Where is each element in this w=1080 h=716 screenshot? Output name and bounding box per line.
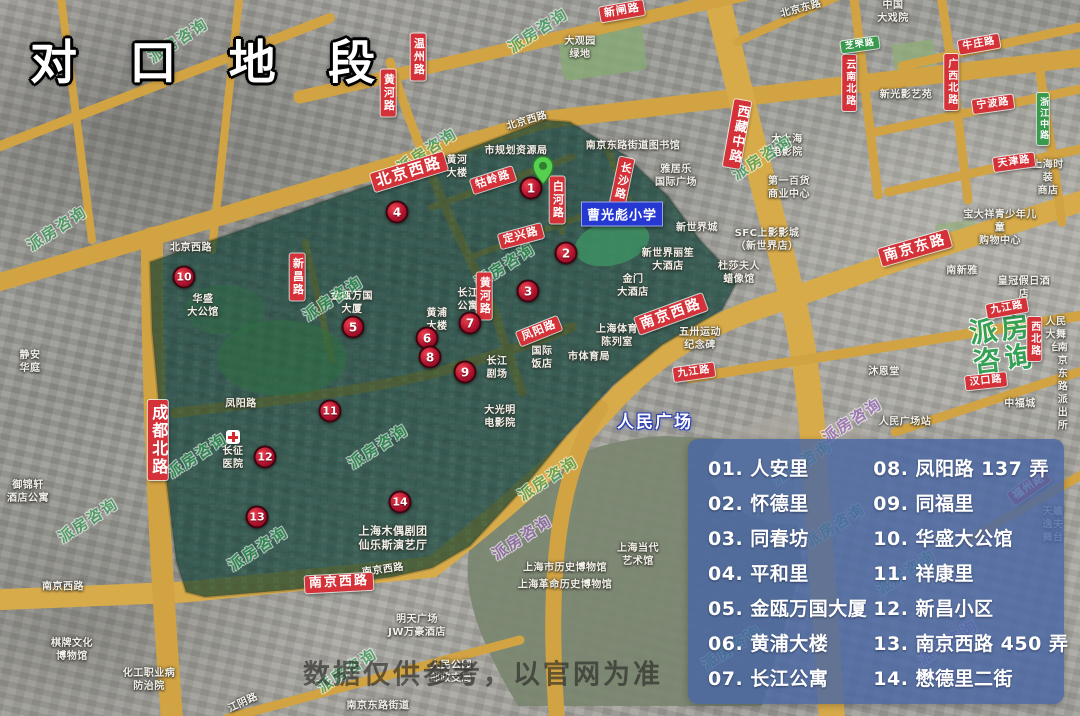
legend-item: 10. 华盛大公馆 [873,524,1068,551]
map-marker-3: 3 [517,280,540,303]
road-label: 浙江中路 [1037,93,1049,145]
legend-item: 05. 金瓯万国大厦 [708,594,867,621]
legend-item: 07. 长江公寓 [708,664,867,691]
map-marker-10: 10 [173,266,196,289]
marker-number: 3 [524,284,532,298]
marker-number: 10 [176,271,191,284]
marker-number: 11 [322,405,337,418]
place-label: 上海市历史博物馆 [523,562,607,575]
marker-number: 5 [349,320,357,334]
road-label: 温州路 [411,34,426,81]
place-label: 宝大祥青少年儿童 购物中心 [960,209,1040,248]
map-marker-1: 1 [520,177,543,200]
place-label: 上海革命历史博物馆 [518,579,613,592]
place-label: 杜莎夫人 蜡像馆 [718,260,760,286]
marker-number: 7 [466,316,474,330]
place-label: 上海木偶剧团 仙乐斯演艺厅 [359,525,428,554]
place-label: SFC上影影城 （新世界店） [735,227,800,253]
map-marker-8: 8 [419,346,442,369]
legend-panel: 01. 人安里 02. 怀德里 03. 同春坊 04. 平和里 05. 金瓯万国… [688,439,1064,704]
place-label: 南新雅 [946,265,978,278]
place-label: 第一百货 商业中心 [768,175,810,201]
place-label: 上海体育 陈列室 [596,323,638,349]
disclaimer-text: 数据仅供参考，以官网为准 [303,653,663,692]
place-label: 长江 剧场 [487,355,508,381]
place-label: 大光明 电影院 [484,404,516,430]
legend-item: 14. 懋德里二街 [873,664,1068,691]
road-label: 成都北路 [148,400,168,480]
road-label-gray: 北京西路 [170,242,212,255]
marker-number: 13 [249,511,264,524]
map-marker-13: 13 [246,506,269,529]
legend-item: 03. 同春坊 [708,524,867,551]
place-label: 大观园 绿地 [564,35,596,61]
road-label: 云南北路 [842,55,856,111]
place-label: 上海当代 艺术馆 [617,542,659,568]
legend-column-left: 01. 人安里 02. 怀德里 03. 同春坊 04. 平和里 05. 金瓯万国… [708,454,867,691]
place-label: 五卅运动 纪念碑 [679,326,721,352]
legend-item: 01. 人安里 [708,454,867,481]
marker-number: 6 [423,331,431,345]
place-label: 新世界丽笙 大酒店 [642,247,695,273]
place-label: 静安 华庭 [20,349,41,375]
place-label: 南京东路街道 [347,700,410,713]
legend-item: 12. 新昌小区 [873,594,1068,621]
map-marker-4: 4 [386,201,409,224]
legend-item: 13. 南京西路 450 弄 [873,629,1068,656]
hospital-cross-icon [226,430,240,444]
place-label: 新光影艺苑 [880,89,933,102]
school-label: 曹光彪小学 [581,202,663,227]
place-label: 长江 公寓 [458,287,479,313]
place-label: 新世界城 [676,222,718,235]
road-label: 西北路 [1027,317,1041,361]
place-label: 市体育局 [568,351,610,364]
place-label: 御锦轩 酒店公寓 [7,479,49,505]
place-label: 人民广场站 [879,416,932,429]
place-label: 化工职业病 防治院 [123,667,176,693]
place-label: 沐恩堂 [868,366,900,379]
place-label: 金门 大酒店 [617,273,649,299]
place-label: 南京东路街道图书馆 [586,140,681,153]
place-label: 上海时装 商店 [1032,159,1064,198]
road-label-gray: 凤阳路 [225,398,257,411]
map-marker-9: 9 [454,361,477,384]
legend-column-right: 08. 凤阳路 137 弄 09. 同福里 10. 华盛大公馆 11. 祥康里 … [873,454,1068,691]
legend-item: 09. 同福里 [873,489,1068,516]
road-label: 南京西路 [305,573,374,593]
place-label: 南京东路 派出所 [1055,342,1072,433]
marker-number: 4 [393,205,401,219]
marker-number: 14 [392,496,407,509]
road-label-gray: 南京西路 [42,581,84,594]
place-label: 明天广场 JW万豪酒店 [388,613,446,639]
map-marker-7: 7 [459,312,482,335]
page-title: 对 口 地 段 [30,24,393,93]
marker-number: 2 [562,246,570,260]
map-marker-12: 12 [254,446,277,469]
road-label: 广西北路 [944,54,958,110]
place-label: 中国 大戏院 [877,0,909,25]
map-marker-14: 14 [389,491,412,514]
legend-item: 04. 平和里 [708,559,867,586]
legend-item: 08. 凤阳路 137 弄 [873,454,1068,481]
map-marker-5: 5 [342,316,365,339]
marker-number: 8 [426,350,434,364]
place-label: 华盛 大公馆 [187,293,219,319]
place-label: 国际 饭店 [532,345,553,371]
legend-item: 06. 黄浦大楼 [708,629,867,656]
legend-item: 02. 怀德里 [708,489,867,516]
place-label: 棋牌文化 博物馆 [51,637,93,663]
marker-number: 1 [527,181,535,195]
map-marker-11: 11 [319,400,342,423]
marker-number: 12 [257,451,272,464]
place-label: 雅居乐 国际广场 [655,163,697,189]
peoples-square-label: 人民广场 [617,408,693,433]
map-canvas: 派房咨询 派房咨询 派房咨询 派房咨询 派房咨询 派房咨询 派房咨询 派房咨询 … [0,0,1080,716]
marker-number: 9 [461,365,469,379]
place-label: 黄河 大楼 [447,154,468,180]
road-label: 新昌路 [290,254,305,301]
place-label: 中福城 [1004,398,1036,411]
road-label: 黄河路 [477,273,492,320]
map-marker-2: 2 [555,242,578,265]
legend-item: 11. 祥康里 [873,559,1068,586]
